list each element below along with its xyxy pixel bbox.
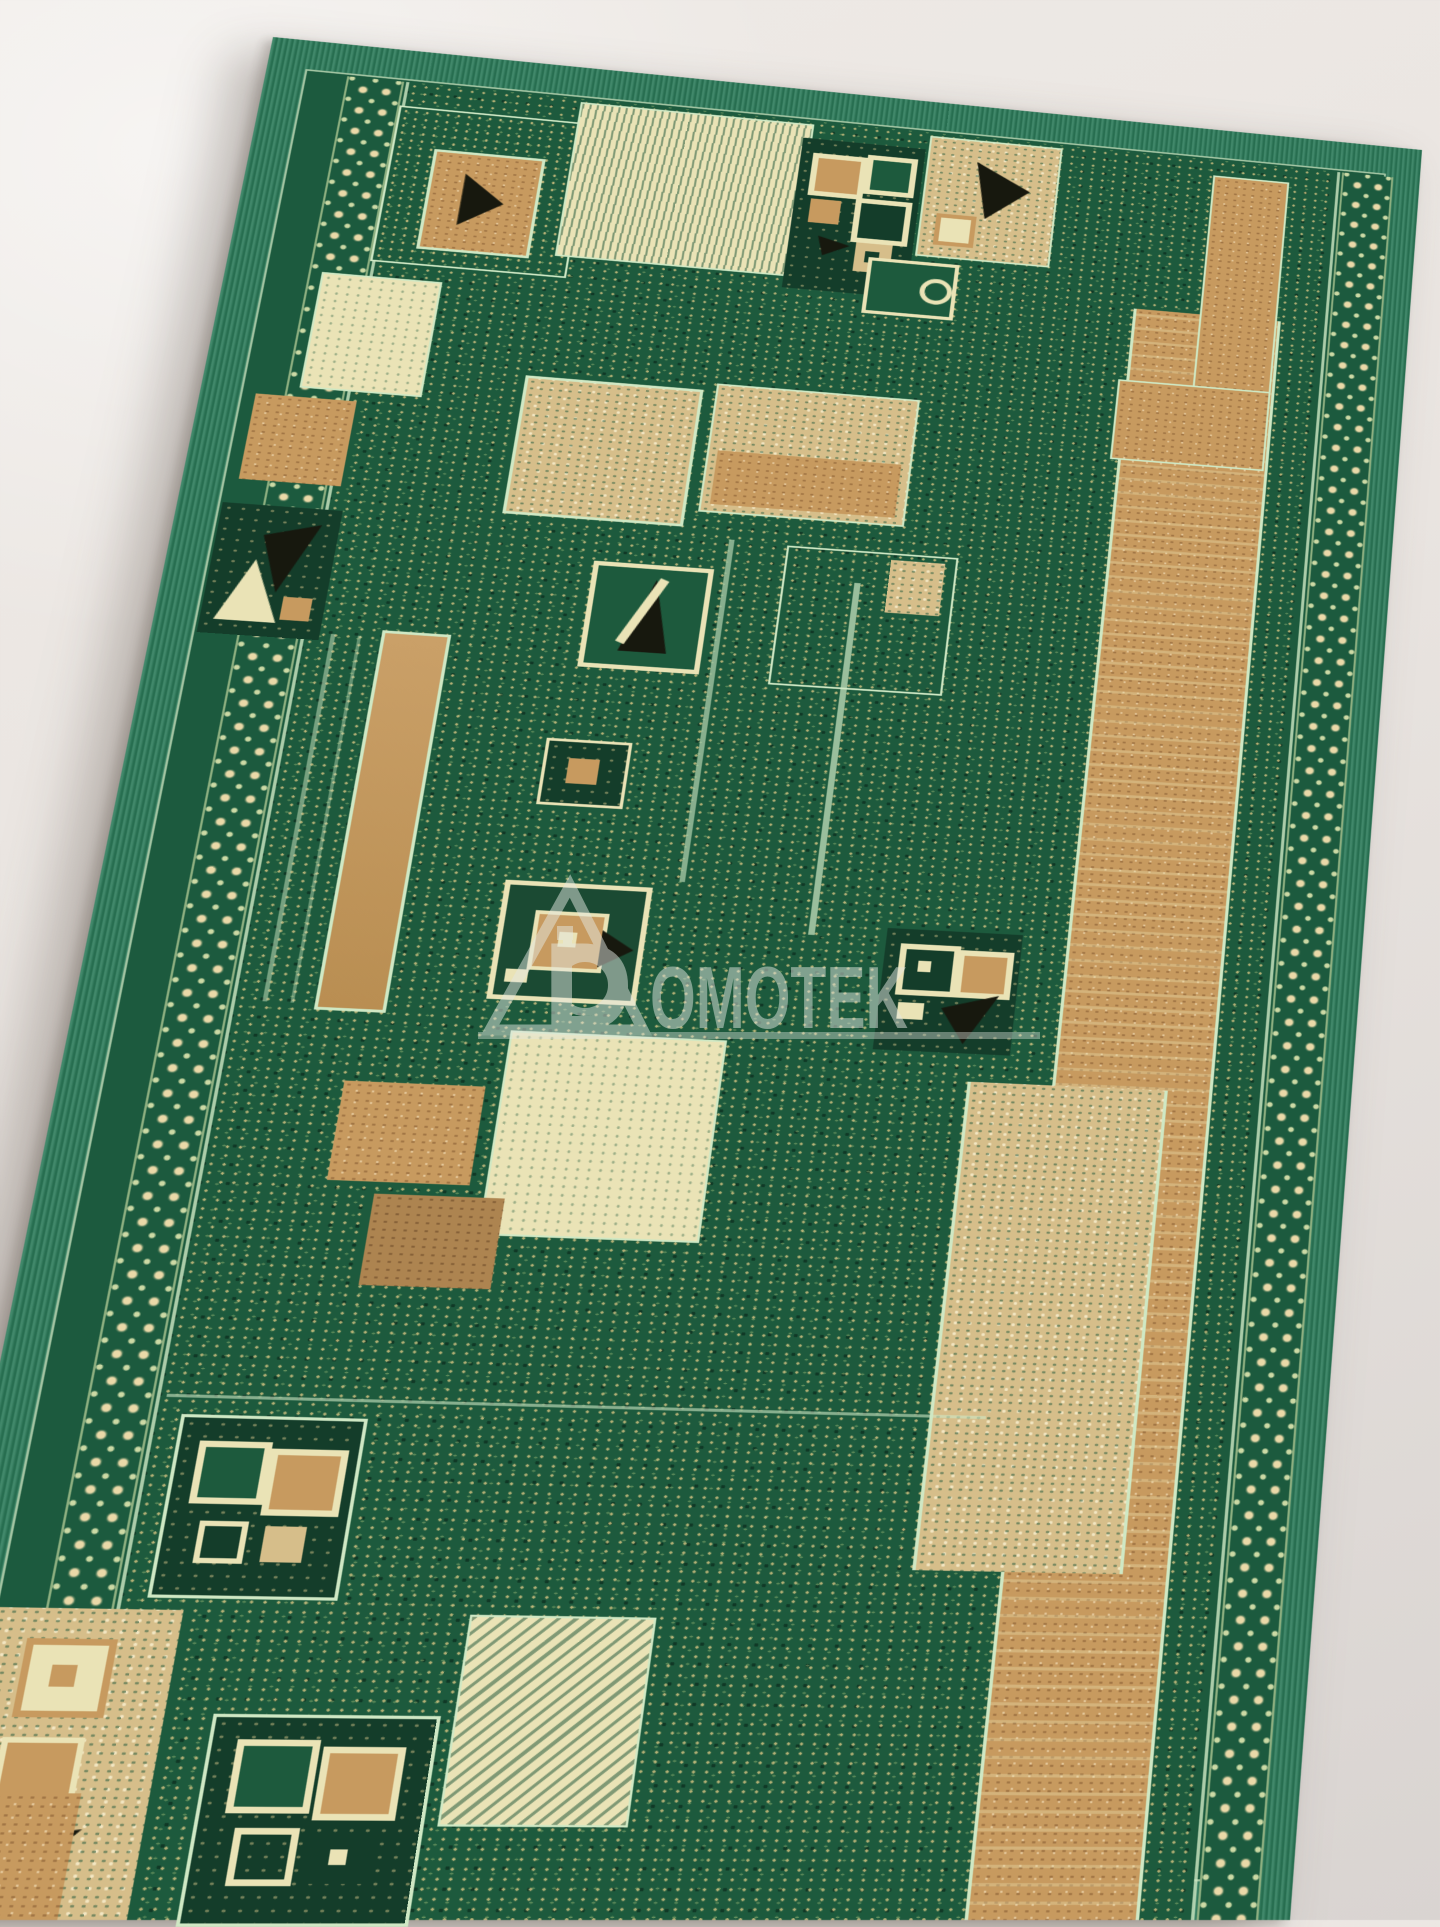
square-motif bbox=[895, 943, 962, 997]
triangle-accent bbox=[937, 993, 999, 1045]
pattern-block bbox=[147, 1414, 368, 1601]
square-motif bbox=[188, 1440, 273, 1504]
pattern-block bbox=[710, 450, 901, 518]
square-motif bbox=[192, 1521, 249, 1564]
square-motif bbox=[225, 1739, 321, 1814]
square-motif bbox=[12, 1638, 118, 1718]
triangle-accent bbox=[442, 166, 519, 236]
pattern-block bbox=[197, 502, 343, 640]
photo: { "image": { "type": "product-photo", "s… bbox=[0, 0, 1440, 1920]
square-motif bbox=[808, 198, 842, 224]
square-motif bbox=[526, 910, 609, 973]
pattern-block bbox=[359, 1194, 505, 1290]
pattern-block bbox=[577, 561, 714, 675]
pattern-block bbox=[1110, 379, 1271, 471]
square-motif bbox=[259, 1526, 307, 1563]
pattern-block bbox=[698, 383, 920, 527]
pattern-block bbox=[502, 375, 703, 526]
pattern-block bbox=[239, 393, 357, 486]
square-motif bbox=[565, 758, 600, 785]
pattern-block bbox=[768, 545, 959, 695]
square-motif bbox=[850, 198, 912, 247]
pattern-block bbox=[478, 1030, 727, 1243]
pattern-block bbox=[555, 102, 815, 277]
square-motif bbox=[504, 968, 529, 982]
triangle-accent bbox=[597, 930, 636, 969]
pattern-block bbox=[176, 1714, 441, 1927]
pattern-block bbox=[915, 136, 1063, 268]
square-motif bbox=[933, 213, 977, 248]
square-motif bbox=[279, 597, 313, 622]
square-motif bbox=[953, 950, 1014, 1000]
rug bbox=[0, 37, 1422, 1920]
circle-motif bbox=[918, 278, 954, 306]
square-motif bbox=[863, 155, 918, 199]
pattern-block bbox=[299, 272, 442, 397]
triangle-accent bbox=[971, 162, 1033, 223]
square-motif bbox=[557, 932, 577, 948]
square-motif bbox=[225, 1828, 300, 1886]
square-motif bbox=[307, 1834, 371, 1884]
pattern-block bbox=[536, 738, 632, 810]
pattern-block bbox=[486, 880, 653, 1006]
pattern-block bbox=[884, 560, 945, 616]
square-motif bbox=[896, 1002, 924, 1020]
pattern-block bbox=[437, 1615, 656, 1828]
pattern-block bbox=[873, 928, 1023, 1056]
square-motif bbox=[312, 1747, 407, 1821]
square-motif bbox=[48, 1665, 78, 1687]
triangle-accent bbox=[815, 236, 850, 258]
square-motif bbox=[328, 1849, 348, 1865]
square-motif bbox=[917, 961, 931, 973]
square-motif bbox=[260, 1449, 349, 1518]
pattern-block bbox=[416, 149, 546, 259]
square-motif bbox=[807, 153, 867, 200]
pattern-block bbox=[327, 1080, 486, 1185]
pattern-block bbox=[861, 257, 959, 321]
